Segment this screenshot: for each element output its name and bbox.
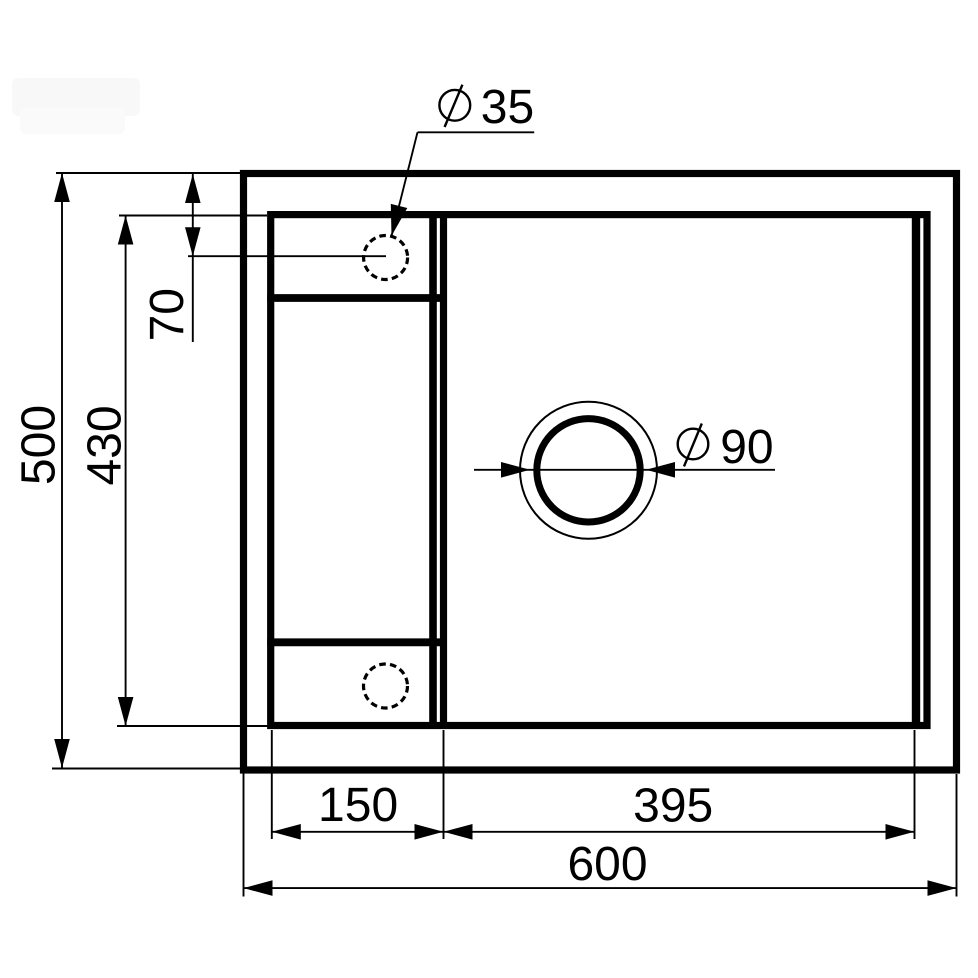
svg-text:150: 150 <box>318 779 398 832</box>
svg-text:90: 90 <box>720 421 773 474</box>
svg-text:395: 395 <box>633 780 713 833</box>
svg-text:500: 500 <box>13 405 66 485</box>
svg-text:600: 600 <box>567 838 647 891</box>
svg-text:70: 70 <box>141 288 194 341</box>
svg-text:430: 430 <box>79 405 132 485</box>
svg-text:35: 35 <box>481 81 534 134</box>
